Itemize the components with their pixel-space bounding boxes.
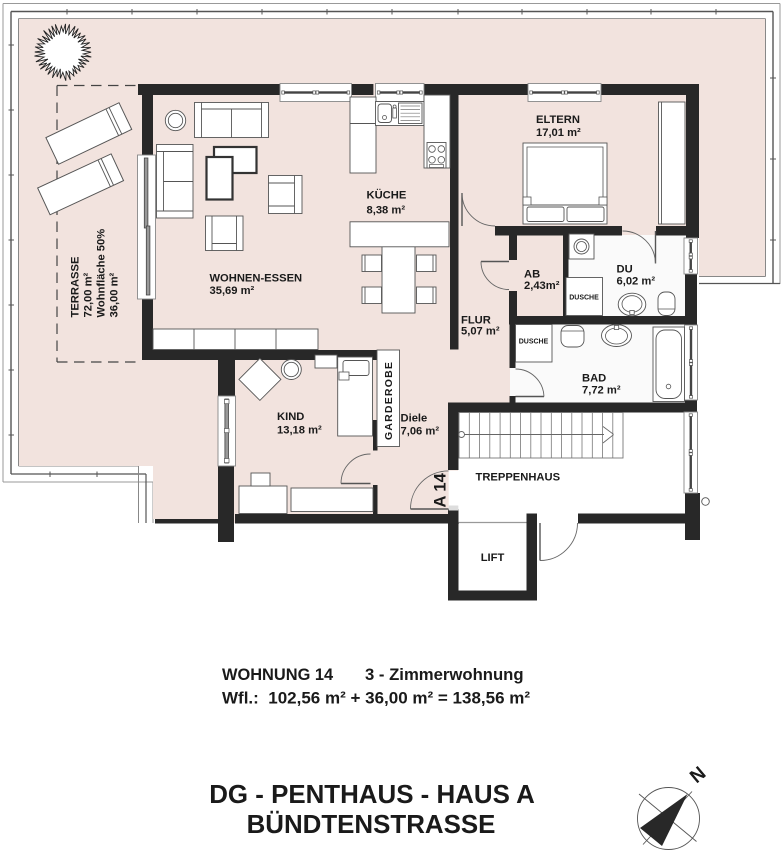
svg-text:7,06 m²: 7,06 m² — [401, 426, 440, 438]
svg-text:7,72 m²: 7,72 m² — [582, 385, 621, 397]
svg-text:A 14: A 14 — [432, 472, 450, 507]
svg-text:ELTERN: ELTERN — [536, 114, 580, 126]
svg-text:KIND: KIND — [277, 411, 304, 423]
svg-text:Wfl.: 102,56 m² + 36,00 m² =: Wfl.: 102,56 m² + 36,00 m² = 138,56 m² — [222, 689, 530, 708]
svg-text:35,69 m²: 35,69 m² — [210, 285, 255, 297]
svg-text:BAD: BAD — [582, 373, 606, 385]
svg-text:3 - Zimmerwohnung: 3 - Zimmerwohnung — [365, 665, 524, 684]
svg-text:TERRASSE: TERRASSE — [70, 256, 82, 317]
svg-text:N: N — [686, 763, 710, 788]
svg-text:WOHNUNG 14: WOHNUNG 14 — [222, 666, 334, 684]
svg-text:TREPPENHAUS: TREPPENHAUS — [476, 472, 561, 484]
svg-text:DUSCHE: DUSCHE — [569, 295, 599, 302]
svg-text:36,00 m²: 36,00 m² — [109, 272, 121, 317]
svg-text:8,38 m²: 8,38 m² — [367, 204, 406, 216]
svg-text:WOHNEN-ESSEN: WOHNEN-ESSEN — [210, 273, 303, 285]
svg-text:KÜCHE: KÜCHE — [367, 189, 407, 202]
svg-text:AB: AB — [524, 269, 540, 281]
svg-text:13,18 m²: 13,18 m² — [277, 425, 322, 437]
svg-text:Diele: Diele — [401, 413, 428, 425]
svg-text:DUSCHE: DUSCHE — [519, 339, 549, 346]
svg-text:DU: DU — [617, 264, 633, 276]
svg-text:Wohnfläche 50%: Wohnfläche 50% — [96, 229, 108, 318]
svg-text:LIFT: LIFT — [481, 552, 505, 564]
svg-text:17,01 m²: 17,01 m² — [536, 127, 581, 139]
svg-text:GARDEROBE: GARDEROBE — [383, 361, 395, 440]
svg-text:72,00 m²: 72,00 m² — [83, 272, 95, 317]
svg-text:BÜNDTENSTRASSE: BÜNDTENSTRASSE — [247, 810, 496, 839]
svg-text:6,02 m²: 6,02 m² — [617, 276, 656, 288]
svg-text:2,43m²: 2,43m² — [524, 280, 560, 292]
svg-text:DG - PENTHAUS - HAUS A: DG - PENTHAUS - HAUS A — [209, 781, 535, 809]
svg-text:5,07 m²: 5,07 m² — [461, 326, 500, 338]
